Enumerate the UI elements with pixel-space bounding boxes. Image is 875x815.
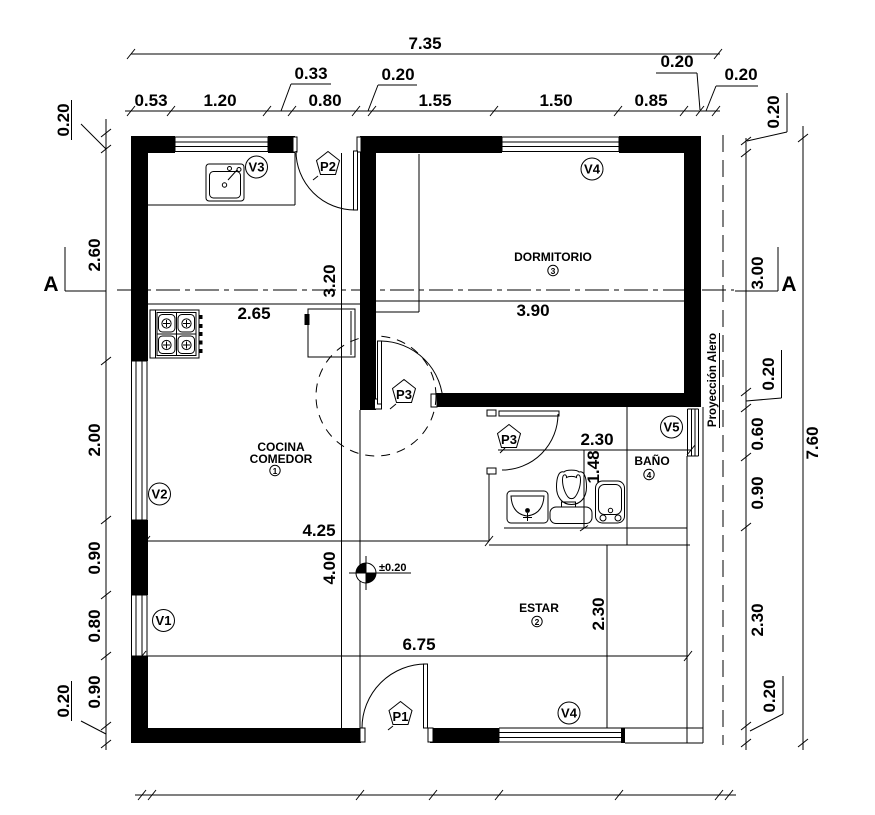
svg-text:3: 3	[551, 266, 556, 276]
svg-text:0.20: 0.20	[381, 65, 414, 84]
svg-text:2: 2	[535, 617, 540, 627]
svg-text:BAÑO: BAÑO	[634, 453, 669, 468]
svg-text:P3: P3	[396, 387, 412, 402]
svg-text:2.60: 2.60	[85, 238, 104, 271]
svg-text:4.25: 4.25	[302, 521, 335, 540]
svg-text:V4: V4	[561, 706, 578, 721]
svg-text:0.90: 0.90	[85, 675, 104, 708]
svg-text:DORMITORIO: DORMITORIO	[514, 250, 592, 264]
svg-text:0.85: 0.85	[634, 91, 667, 110]
svg-text:7.35: 7.35	[408, 34, 441, 53]
svg-text:P2: P2	[320, 159, 336, 174]
svg-text:V5: V5	[664, 420, 680, 435]
svg-text:1.20: 1.20	[203, 91, 236, 110]
svg-text:COMEDOR: COMEDOR	[250, 452, 313, 466]
svg-text:4.00: 4.00	[320, 551, 339, 584]
svg-text:0.20: 0.20	[54, 103, 73, 136]
svg-text:2.30: 2.30	[589, 597, 608, 630]
svg-text:6.75: 6.75	[402, 635, 435, 654]
svg-text:Proyección Alero: Proyección Alero	[707, 333, 719, 427]
svg-text:0.90: 0.90	[85, 541, 104, 574]
svg-text:2.00: 2.00	[85, 423, 104, 456]
svg-text:0.80: 0.80	[308, 91, 341, 110]
svg-text:V3: V3	[249, 160, 265, 175]
svg-text:3.00: 3.00	[748, 256, 767, 289]
svg-text:0.60: 0.60	[748, 417, 767, 450]
svg-text:2.30: 2.30	[580, 430, 613, 449]
svg-text:1.48: 1.48	[584, 450, 603, 483]
svg-text:±0.20: ±0.20	[379, 562, 406, 574]
svg-text:A: A	[43, 273, 58, 296]
svg-text:P3: P3	[501, 432, 517, 447]
svg-text:A: A	[781, 273, 796, 296]
svg-text:0.20: 0.20	[759, 357, 778, 390]
svg-text:0.20: 0.20	[724, 65, 757, 84]
svg-text:V1: V1	[156, 613, 172, 628]
svg-text:0.80: 0.80	[85, 609, 104, 642]
svg-text:P1: P1	[393, 709, 409, 724]
svg-text:2.65: 2.65	[237, 304, 270, 323]
svg-text:0.33: 0.33	[294, 64, 327, 83]
svg-text:1.50: 1.50	[539, 91, 572, 110]
svg-text:2.30: 2.30	[748, 603, 767, 636]
svg-text:0.20: 0.20	[54, 684, 73, 717]
svg-text:V4: V4	[584, 162, 601, 177]
svg-text:ESTAR: ESTAR	[519, 601, 559, 615]
svg-text:7.60: 7.60	[803, 426, 822, 459]
svg-text:0.53: 0.53	[134, 91, 167, 110]
svg-text:3.90: 3.90	[516, 301, 549, 320]
svg-text:0.90: 0.90	[748, 476, 767, 509]
svg-text:3.20: 3.20	[320, 264, 339, 297]
svg-text:1: 1	[273, 466, 278, 476]
svg-text:4: 4	[647, 470, 652, 480]
svg-text:0.20: 0.20	[660, 52, 693, 71]
svg-text:0.20: 0.20	[764, 95, 783, 128]
svg-text:1.55: 1.55	[418, 91, 451, 110]
svg-text:V2: V2	[152, 487, 168, 502]
svg-text:0.20: 0.20	[760, 679, 779, 712]
